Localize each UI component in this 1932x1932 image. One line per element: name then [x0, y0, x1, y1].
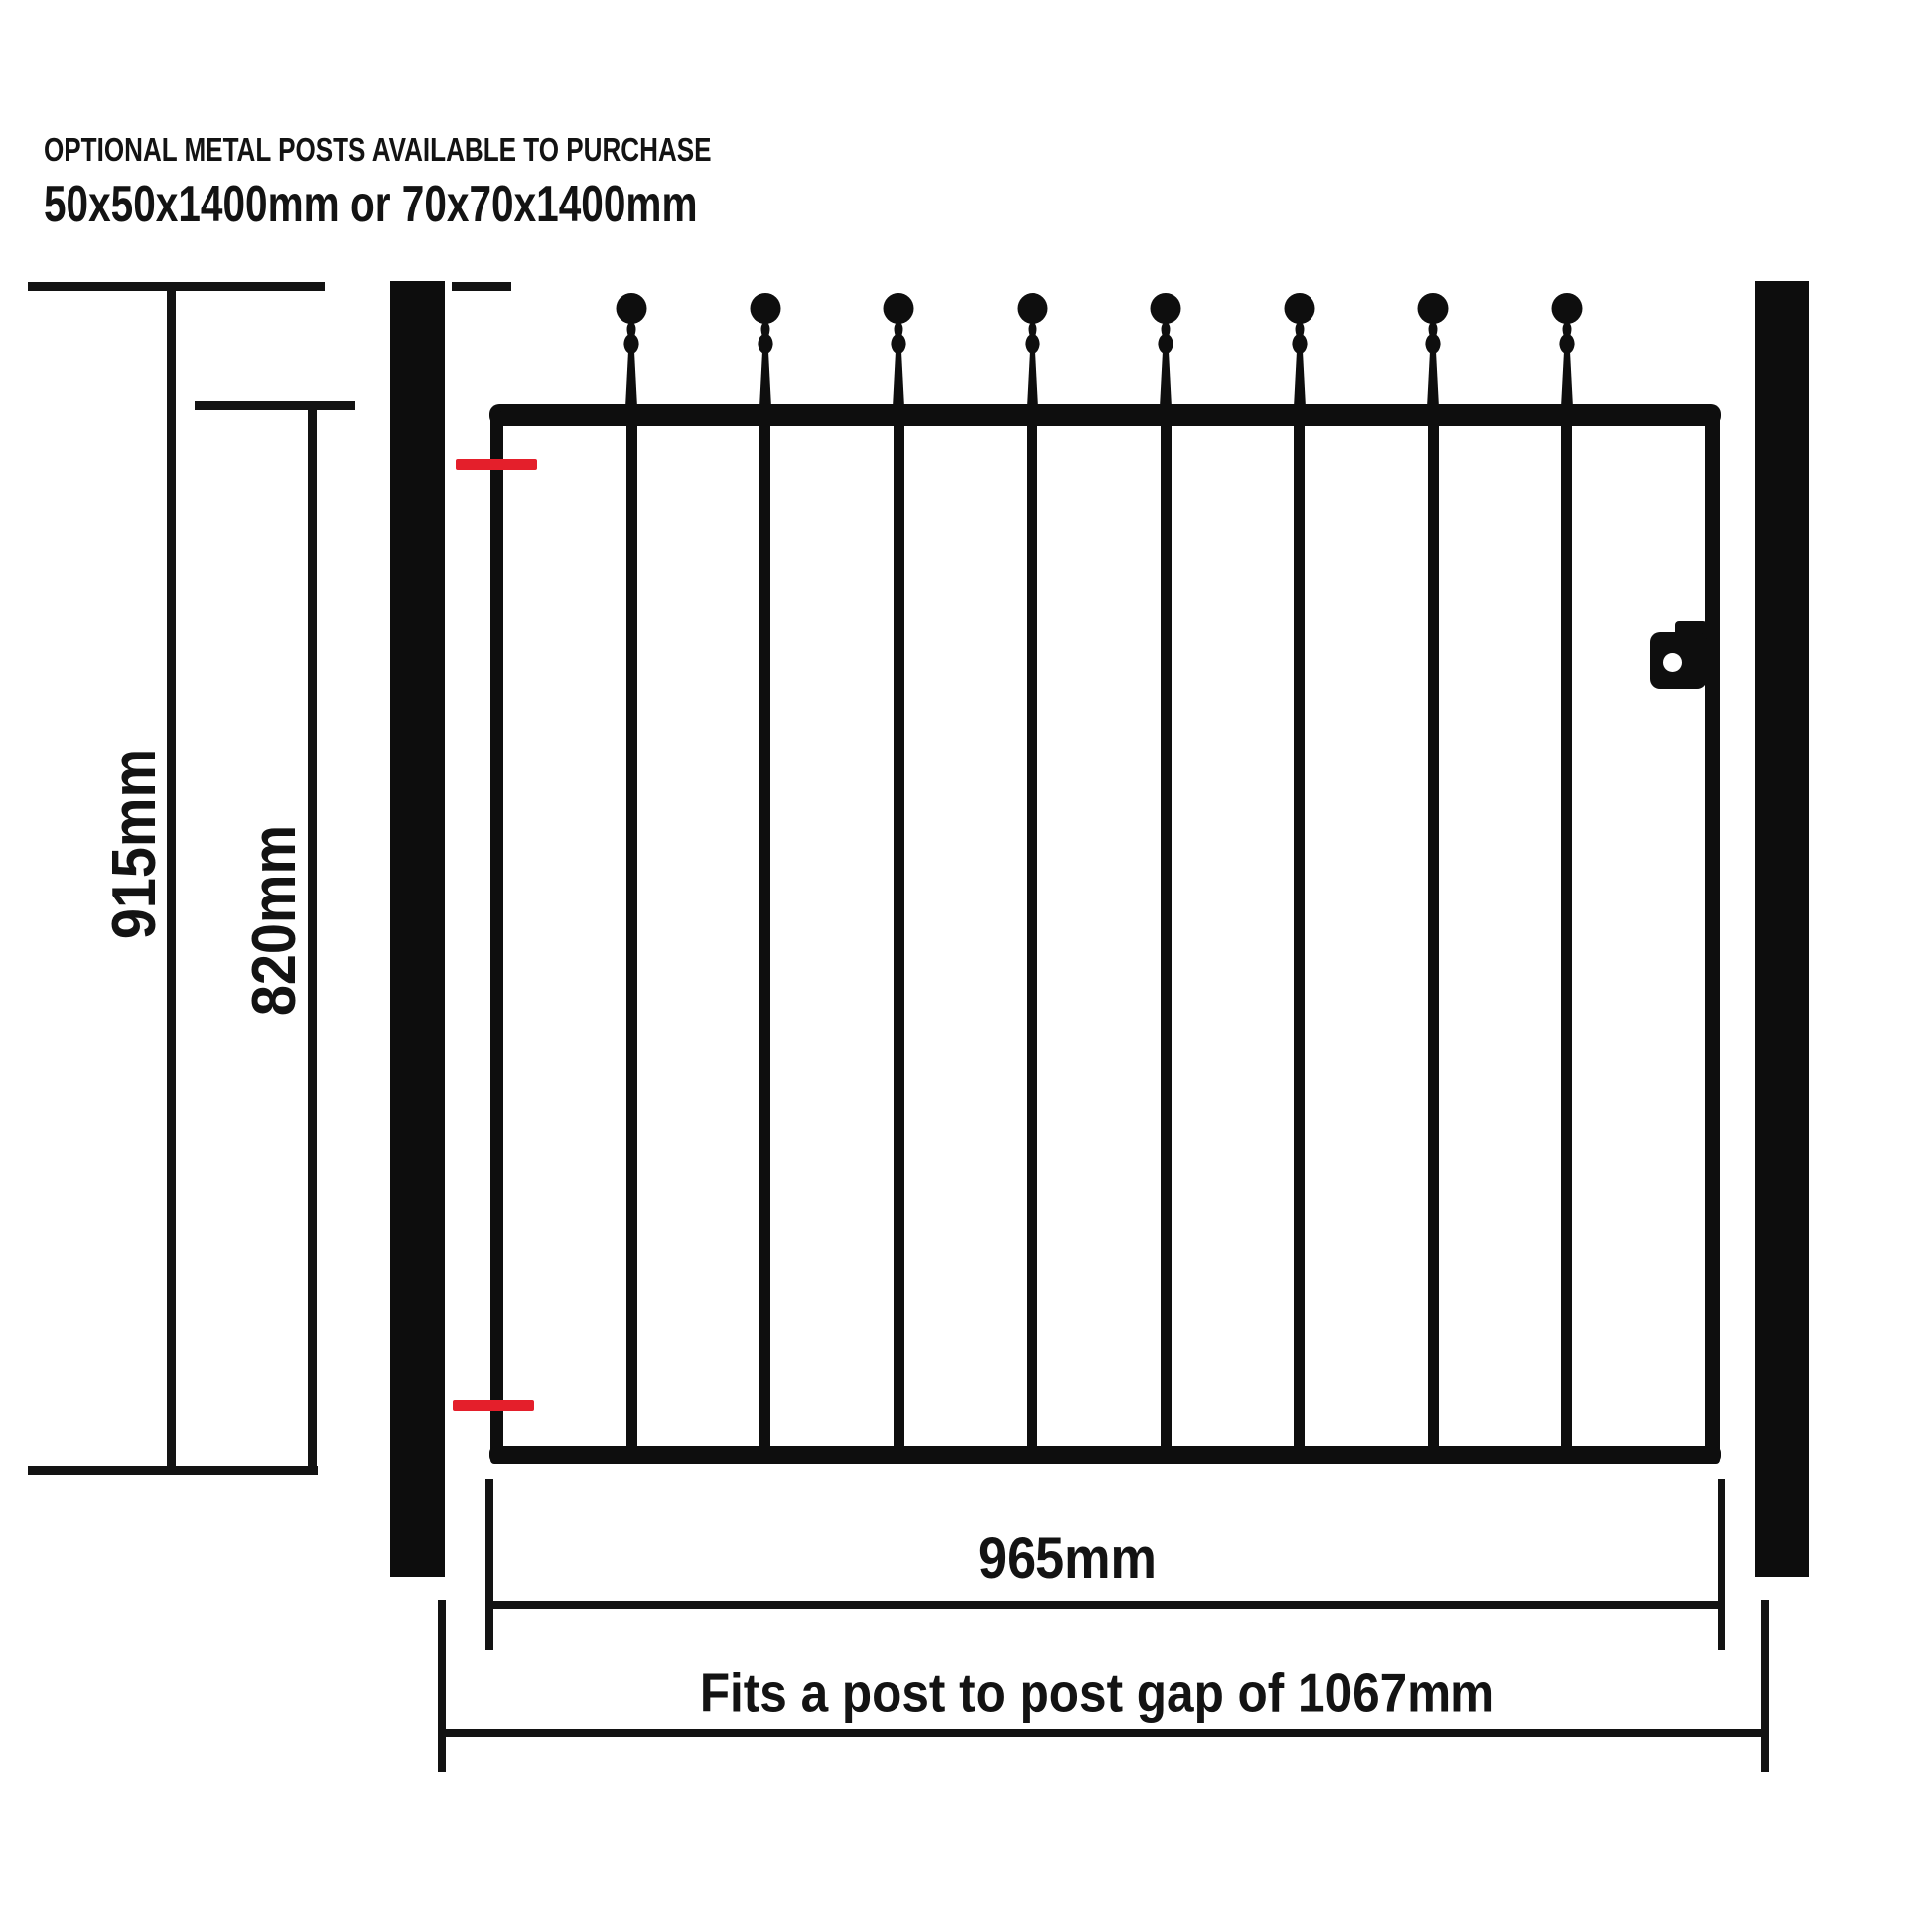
ball-finial-icon	[1013, 292, 1052, 413]
gate-bar	[626, 421, 637, 1453]
gate-bar	[1027, 421, 1037, 1453]
dim-915-label: 915mm	[104, 749, 166, 939]
ball-finial-icon	[612, 292, 651, 413]
ball-finial-icon	[1413, 292, 1452, 413]
gate-bar	[1294, 421, 1305, 1453]
gate-bar	[1161, 421, 1172, 1453]
gate-dimension-diagram: OPTIONAL METAL POSTS AVAILABLE TO PURCHA…	[0, 0, 1932, 1932]
dim-1067-right-tick	[1761, 1600, 1769, 1772]
hinge-marker-bottom	[453, 1400, 534, 1411]
dim-915-top-extension-line	[28, 282, 325, 291]
gate-top-rail	[489, 404, 1721, 426]
dim-965-label: 965mm	[978, 1530, 1157, 1587]
ball-finial-icon	[1280, 292, 1319, 413]
ball-finial-icon	[1146, 292, 1185, 413]
dim-1067-left-tick	[438, 1600, 446, 1772]
dim-820-extension-line	[195, 401, 355, 410]
title-line-1: OPTIONAL METAL POSTS AVAILABLE TO PURCHA…	[44, 133, 712, 166]
ball-finial-icon	[879, 292, 918, 413]
gate-bar	[1561, 421, 1572, 1453]
dim-965-line	[485, 1601, 1725, 1609]
dim-965-left-tick	[485, 1479, 493, 1650]
dim-820-vertical-line	[308, 401, 317, 1474]
dim-1067-line	[438, 1729, 1769, 1737]
gate-left-frame	[490, 411, 503, 1464]
ball-finial-icon	[1547, 292, 1587, 413]
title-line-2: 50x50x1400mm or 70x70x1400mm	[44, 179, 698, 230]
ball-finial-icon	[746, 292, 785, 413]
gate-bar	[1428, 421, 1439, 1453]
gate-right-frame	[1705, 411, 1720, 1464]
right-post	[1755, 281, 1809, 1577]
dim-915-top-extension-line-right	[452, 282, 511, 291]
dim-1067-label: Fits a post to post gap of 1067mm	[700, 1666, 1494, 1721]
dim-915-bottom-extension-line	[28, 1466, 318, 1475]
gate-bar	[759, 421, 770, 1453]
gate-bar	[894, 421, 904, 1453]
gate-bottom-rail	[489, 1446, 1721, 1464]
latch-hole-icon	[1663, 653, 1682, 672]
dim-820-label: 820mm	[244, 825, 306, 1016]
dim-965-right-tick	[1718, 1479, 1725, 1650]
hinge-marker-top	[456, 459, 537, 470]
left-post	[390, 281, 445, 1577]
